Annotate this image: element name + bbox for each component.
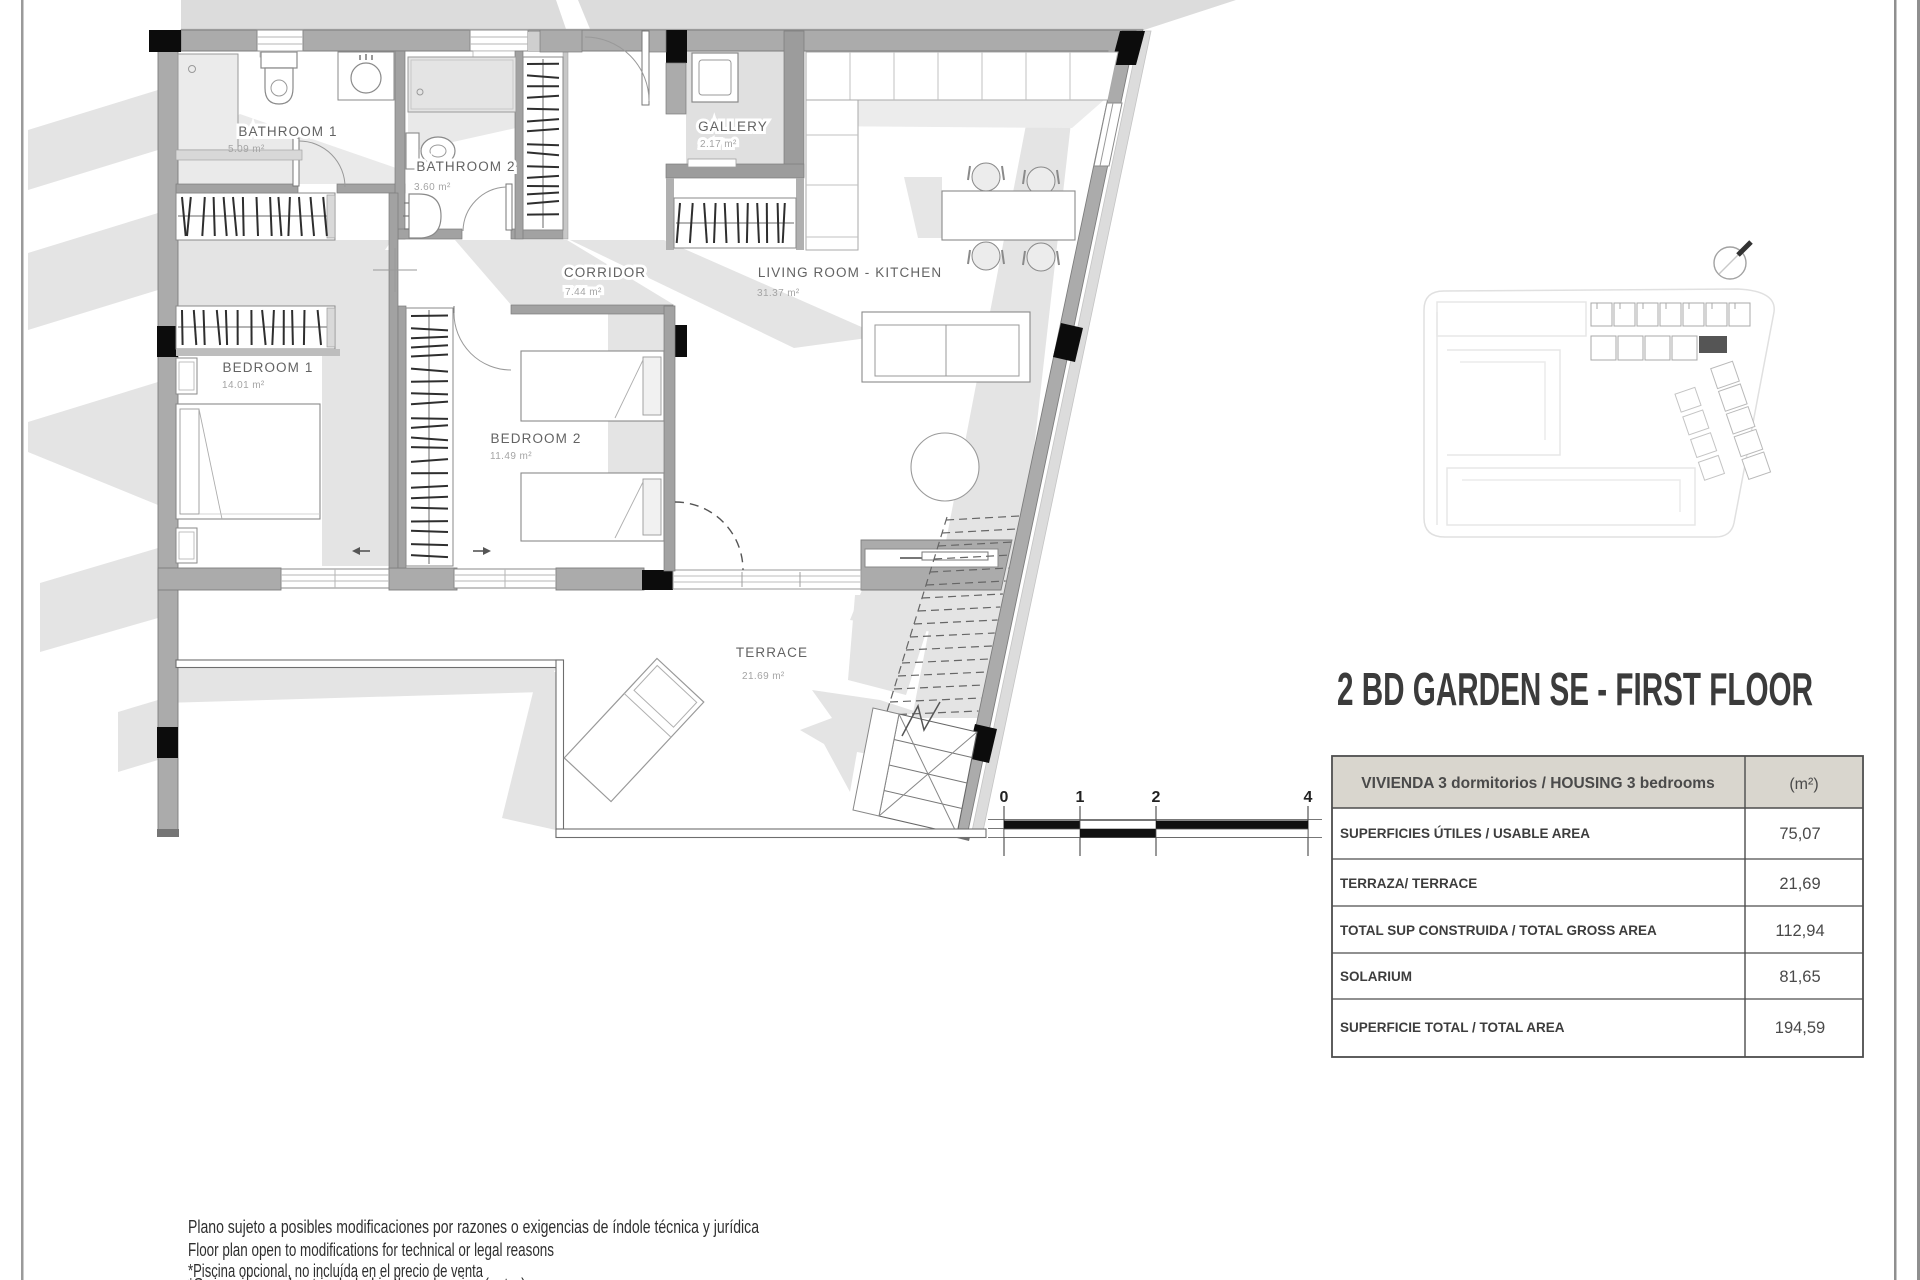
svg-text:21,69: 21,69 [1779,875,1820,893]
svg-text:LIVING ROOM - KITCHEN: LIVING ROOM - KITCHEN [758,265,942,280]
svg-text:4: 4 [1304,789,1313,806]
svg-text:5.09 m²: 5.09 m² [228,144,265,155]
svg-text:2.17 m²: 2.17 m² [700,139,737,150]
svg-text:BATHROOM 1: BATHROOM 1 [238,124,337,139]
svg-text:Plano sujeto a posibles modifi: Plano sujeto a posibles modificaciones p… [188,1217,760,1237]
svg-text:(m²): (m²) [1789,776,1818,793]
svg-text:0: 0 [1000,789,1009,806]
svg-text:7.44 m²: 7.44 m² [565,287,602,298]
svg-text:SOLARIUM: SOLARIUM [1340,969,1412,984]
svg-text:CORRIDOR: CORRIDOR [564,265,646,280]
svg-text:GALLERY: GALLERY [698,119,768,134]
svg-text:2: 2 [1152,789,1161,806]
svg-text:11.49 m²: 11.49 m² [490,451,532,462]
svg-text:194,59: 194,59 [1775,1019,1825,1037]
svg-text:SUPERFICIES ÚTILES / USABLE AR: SUPERFICIES ÚTILES / USABLE AREA [1340,826,1590,841]
svg-text:SUPERFICIE TOTAL / TOTAL AREA: SUPERFICIE TOTAL / TOTAL AREA [1340,1020,1565,1035]
svg-text:3.60 m²: 3.60 m² [414,182,451,193]
svg-text:112,94: 112,94 [1775,922,1824,940]
svg-text:21.69 m²: 21.69 m² [742,671,785,682]
svg-text:VIVIENDA 3 dormitorios / HOUSI: VIVIENDA 3 dormitorios / HOUSING 3 bedro… [1361,775,1714,792]
svg-text:75,07: 75,07 [1779,825,1820,843]
svg-text:TERRAZA/ TERRACE: TERRAZA/ TERRACE [1340,876,1477,891]
svg-text:81,65: 81,65 [1779,968,1820,986]
svg-text:*Swimming pool not included in: *Swimming pool not included in the sale … [188,1275,526,1280]
svg-text:2 BD GARDEN SE - FIRST FLOOR: 2 BD GARDEN SE - FIRST FLOOR [1337,663,1813,715]
svg-text:14.01 m²: 14.01 m² [222,380,265,391]
svg-text:Floor plan open to modificatio: Floor plan open to modifications for tec… [188,1240,554,1260]
svg-text:TOTAL SUP CONSTRUIDA / TOTAL G: TOTAL SUP CONSTRUIDA / TOTAL GROSS AREA [1340,923,1657,938]
svg-text:BEDROOM 2: BEDROOM 2 [491,431,582,446]
svg-text:BATHROOM 2: BATHROOM 2 [416,159,515,174]
svg-text:1: 1 [1076,789,1085,806]
svg-text:31.37 m²: 31.37 m² [757,288,800,299]
svg-text:BEDROOM 1: BEDROOM 1 [223,360,314,375]
svg-text:TERRACE: TERRACE [736,645,808,660]
